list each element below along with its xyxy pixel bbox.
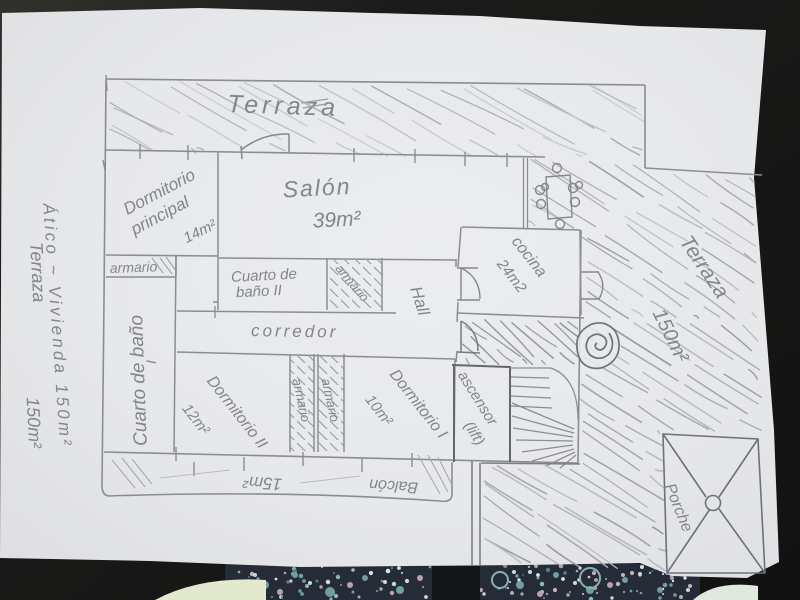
- svg-text:150m²: 150m²: [23, 397, 46, 450]
- svg-text:baño II: baño II: [236, 282, 283, 301]
- svg-text:corredor: corredor: [251, 321, 339, 342]
- svg-text:39m²: 39m²: [312, 207, 362, 233]
- svg-text:Salón: Salón: [282, 173, 352, 203]
- svg-text:Balcón: Balcón: [369, 475, 419, 495]
- svg-text:15m²: 15m²: [241, 472, 282, 494]
- svg-text:Terraza: Terraza: [26, 242, 49, 303]
- svg-text:armario: armario: [110, 258, 158, 276]
- svg-text:Terraza: Terraza: [227, 90, 340, 122]
- svg-text:I: I: [143, 360, 159, 364]
